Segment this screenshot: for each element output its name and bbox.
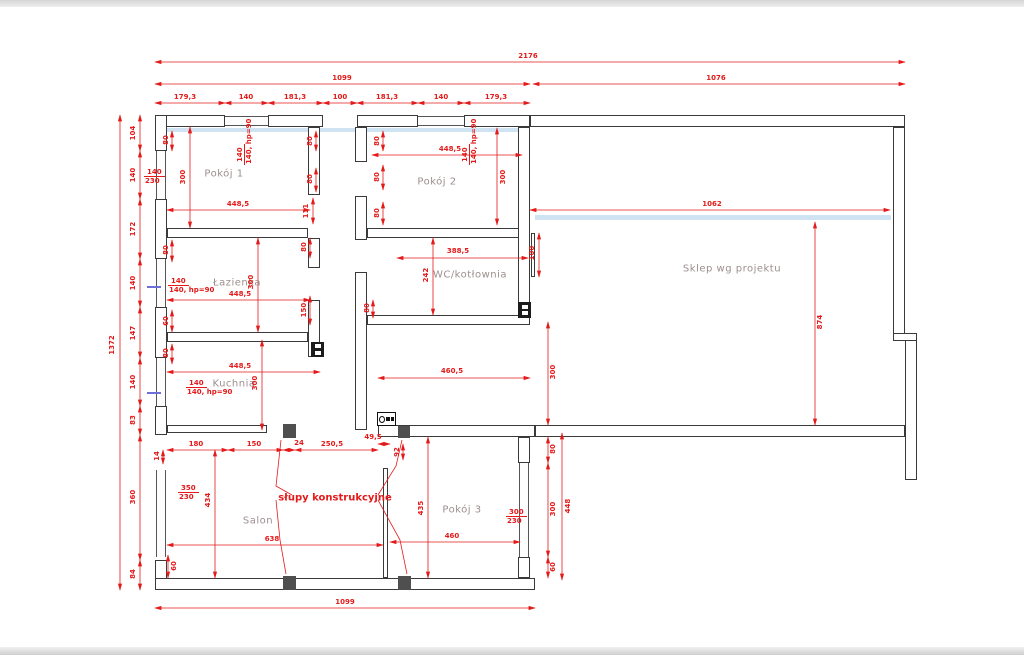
room-label-pokoj-3: Pokój 3 bbox=[442, 505, 481, 516]
dimension-label: 60 bbox=[162, 316, 170, 326]
dimension-label: 80 bbox=[373, 136, 381, 146]
dimension-label: 179,3 bbox=[485, 93, 507, 101]
dimension-label: 300 bbox=[179, 170, 187, 185]
room-label-salon: Salon bbox=[243, 516, 273, 527]
room-label-sklep: Sklep wg projektu bbox=[683, 264, 781, 275]
dimension-label: 60 bbox=[170, 561, 178, 571]
dimension-label: 300 bbox=[499, 170, 507, 185]
dimension-label: 14 bbox=[153, 451, 161, 461]
scan-edge-top bbox=[0, 0, 1024, 7]
dimension-label: 150 bbox=[300, 303, 308, 318]
dimension-label: 1062 bbox=[702, 200, 721, 208]
dimension-label: 80 bbox=[306, 174, 314, 184]
structural-columns-note: słupy konstrukcyjne bbox=[278, 493, 392, 504]
dimension-label: 448,5 bbox=[227, 200, 249, 208]
dimension-label: 49,5 bbox=[364, 433, 381, 441]
dimension-label: 83 bbox=[129, 415, 137, 425]
dimension-label: 242 bbox=[422, 268, 430, 283]
dimension-label: 100 bbox=[528, 246, 536, 261]
leader-line bbox=[378, 500, 407, 574]
opening-size-note: 300230 bbox=[506, 508, 527, 525]
dimension-label: 92 bbox=[393, 447, 401, 457]
dimension-label: 80 bbox=[363, 303, 371, 313]
dimension-label: 2176 bbox=[518, 52, 537, 60]
dimension-label: 181,3 bbox=[284, 93, 306, 101]
dimension-label: 80 bbox=[300, 242, 308, 252]
dimension-label: 1099 bbox=[332, 74, 351, 82]
dimension-label: 1076 bbox=[706, 74, 725, 82]
opening-size-note: 140140, hp=90 bbox=[168, 277, 215, 294]
dimension-label: 300 bbox=[549, 502, 557, 517]
dimension-label: 80 bbox=[162, 135, 170, 145]
leader-line bbox=[276, 440, 292, 495]
opening-size-note: 350230 bbox=[178, 484, 199, 501]
dimension-label: 460 bbox=[445, 532, 460, 540]
dimension-label: 80 bbox=[373, 208, 381, 218]
dimension-label: 172 bbox=[129, 222, 137, 237]
dimension-label: 448,5 bbox=[439, 145, 461, 153]
dimension-label: 448,5 bbox=[229, 290, 251, 298]
room-label-pokoj-2: Pokój 2 bbox=[417, 177, 456, 188]
dimension-label: 181,3 bbox=[376, 93, 398, 101]
dimension-label: 80 bbox=[162, 348, 170, 358]
dimension-label: 300 bbox=[251, 376, 259, 391]
dimension-label: 111 bbox=[302, 204, 310, 219]
dimension-label: 179,3 bbox=[174, 93, 196, 101]
dimension-label: 140 bbox=[129, 276, 137, 291]
dimension-label: 180 bbox=[189, 440, 204, 448]
opening-size-note: 140140, hp=90 bbox=[461, 118, 478, 165]
dimension-label: 1372 bbox=[108, 335, 116, 354]
dimension-label: 300 bbox=[549, 365, 557, 380]
dimension-label: 448 bbox=[564, 499, 572, 514]
dimension-label: 60 bbox=[549, 562, 557, 572]
dimension-label: 448,5 bbox=[229, 362, 251, 370]
dimension-label: 460,5 bbox=[441, 367, 463, 375]
dimension-label: 874 bbox=[816, 315, 824, 330]
room-label-pokoj-1: Pokój 1 bbox=[204, 169, 243, 180]
dimension-label: 300 bbox=[247, 275, 255, 290]
dimension-label: 140 bbox=[129, 375, 137, 390]
dimension-label: 104 bbox=[129, 126, 137, 141]
dimension-label: 140 bbox=[129, 168, 137, 183]
opening-size-note: 140140, hp=90 bbox=[186, 379, 233, 396]
opening-size-note: 140230 bbox=[144, 168, 165, 185]
dimension-label: 140 bbox=[239, 93, 254, 101]
room-label-wc-kotlownia: WC/kotłownia bbox=[433, 270, 507, 281]
dimension-label: 150 bbox=[247, 440, 262, 448]
dimension-label: 388,5 bbox=[447, 247, 469, 255]
dimension-label: 360 bbox=[129, 490, 137, 505]
dimension-label: 638 bbox=[265, 535, 280, 543]
dimension-label: 24 bbox=[294, 439, 304, 447]
dimension-label: 250,5 bbox=[321, 440, 343, 448]
floor-plan-canvas: Pokój 1Pokój 2ŁazienkaKuchniaWC/kotłowni… bbox=[0, 0, 1024, 655]
dimension-label: 1099 bbox=[335, 598, 354, 606]
dimension-label: 80 bbox=[549, 444, 557, 454]
opening-size-note: 140140, hp=90 bbox=[236, 118, 253, 165]
dimension-label: 140 bbox=[434, 93, 449, 101]
dimension-label: 434 bbox=[204, 493, 212, 508]
scan-edge-bottom bbox=[0, 647, 1024, 655]
dimension-label: 435 bbox=[417, 501, 425, 516]
dimension-lines-layer bbox=[0, 0, 1024, 655]
dimension-label: 84 bbox=[129, 569, 137, 579]
dimension-label: 80 bbox=[373, 172, 381, 182]
dimension-label: 80 bbox=[162, 245, 170, 255]
dimension-label: 80 bbox=[306, 136, 314, 146]
dimension-label: 100 bbox=[333, 93, 348, 101]
dimension-label: 147 bbox=[129, 326, 137, 341]
